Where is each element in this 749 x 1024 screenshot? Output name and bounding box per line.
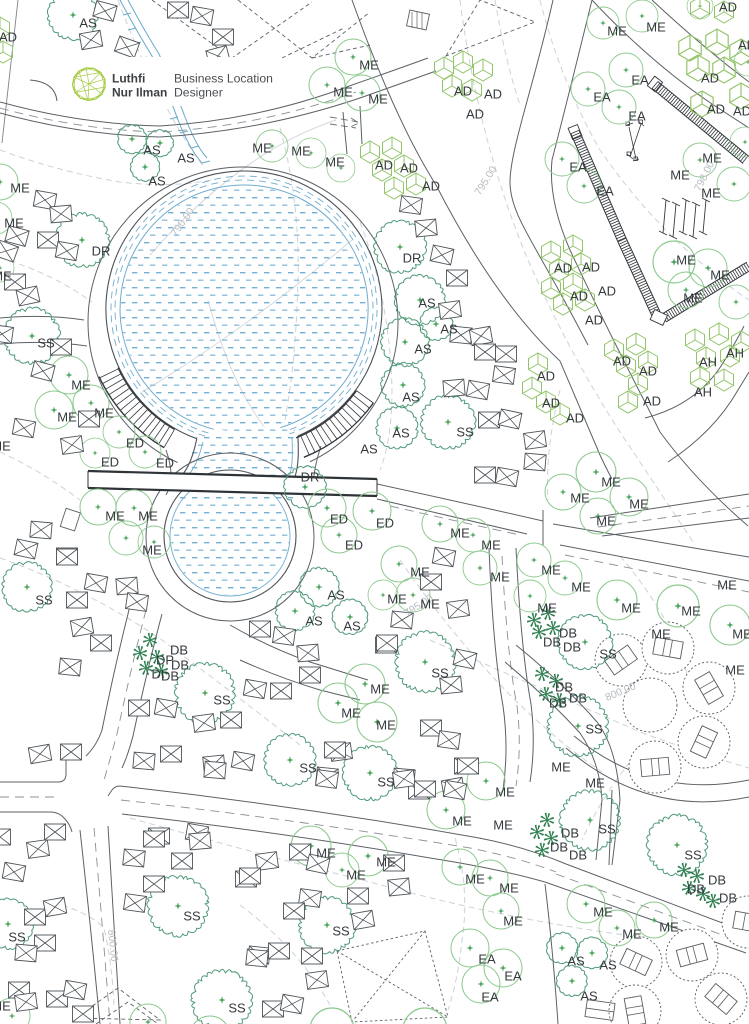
- svg-text:SS: SS: [585, 722, 603, 737]
- svg-text:AS: AS: [305, 614, 323, 629]
- svg-text:AS: AS: [567, 954, 585, 969]
- svg-text:DB: DB: [549, 696, 567, 711]
- svg-text:ME: ME: [333, 85, 353, 100]
- svg-text:DB: DB: [550, 840, 568, 855]
- svg-text:AS: AS: [148, 174, 166, 189]
- svg-text:SS: SS: [332, 924, 350, 939]
- svg-text:ME: ME: [701, 186, 721, 201]
- svg-text:ME: ME: [570, 491, 590, 506]
- svg-text:ME: ME: [659, 920, 679, 935]
- svg-text:AH: AH: [726, 346, 744, 361]
- svg-text:DB: DB: [719, 891, 737, 906]
- svg-text:SS: SS: [228, 1001, 246, 1016]
- svg-text:AS: AS: [580, 989, 598, 1004]
- svg-text:ME: ME: [495, 785, 515, 800]
- svg-text:SS: SS: [183, 909, 201, 924]
- svg-text:ME: ME: [651, 627, 671, 642]
- svg-text:DB: DB: [569, 691, 587, 706]
- svg-text:EA: EA: [569, 160, 587, 175]
- svg-text:ME: ME: [670, 168, 690, 183]
- svg-text:DB: DB: [569, 848, 587, 863]
- svg-text:ME: ME: [71, 378, 91, 393]
- svg-text:AD: AD: [484, 87, 502, 102]
- svg-text:Business Location: Business Location: [174, 72, 273, 86]
- svg-text:ME: ME: [420, 597, 440, 612]
- svg-text:ED: ED: [126, 436, 144, 451]
- svg-text:DB: DB: [543, 635, 561, 650]
- svg-text:AD: AD: [0, 30, 17, 45]
- svg-text:ME: ME: [359, 58, 379, 73]
- svg-text:ME: ME: [481, 538, 501, 553]
- svg-text:ME: ME: [57, 410, 77, 425]
- svg-text:EA: EA: [478, 952, 496, 967]
- svg-text:SS: SS: [213, 693, 231, 708]
- svg-text:SS: SS: [377, 775, 395, 790]
- svg-text:ME: ME: [585, 776, 605, 791]
- svg-text:ME: ME: [291, 144, 311, 159]
- svg-text:ME: ME: [370, 682, 390, 697]
- svg-text:ME: ME: [142, 543, 162, 558]
- svg-text:AD: AD: [554, 261, 572, 276]
- svg-text:AD: AD: [466, 107, 484, 122]
- svg-text:ME: ME: [593, 905, 613, 920]
- svg-text:Luthfi: Luthfi: [112, 72, 145, 86]
- svg-text:ME: ME: [571, 580, 591, 595]
- svg-text:AH: AH: [694, 385, 712, 400]
- svg-text:AD: AD: [542, 396, 560, 411]
- svg-text:ME: ME: [537, 601, 557, 616]
- svg-text:AD: AD: [566, 411, 584, 426]
- svg-text:AD: AD: [585, 313, 603, 328]
- svg-text:DB: DB: [687, 882, 705, 897]
- svg-text:ME: ME: [499, 881, 519, 896]
- svg-text:SS: SS: [598, 822, 616, 837]
- svg-text:EA: EA: [481, 990, 499, 1005]
- svg-text:AD: AD: [537, 369, 555, 384]
- svg-text:ME: ME: [0, 439, 11, 454]
- svg-text:AS: AS: [79, 16, 97, 31]
- svg-text:ME: ME: [387, 592, 407, 607]
- svg-text:ME: ME: [503, 914, 523, 929]
- svg-text:EA: EA: [631, 73, 649, 88]
- svg-text:ME: ME: [325, 155, 345, 170]
- svg-text:ME: ME: [490, 570, 510, 585]
- svg-text:DB: DB: [559, 626, 577, 641]
- svg-text:DR: DR: [403, 251, 422, 266]
- svg-text:ME: ME: [450, 526, 470, 541]
- svg-text:AS: AS: [360, 442, 378, 457]
- svg-text:AD: AD: [738, 38, 749, 53]
- svg-text:AD: AD: [719, 0, 737, 15]
- svg-text:SS: SS: [37, 336, 55, 351]
- svg-text:ME: ME: [0, 999, 11, 1014]
- svg-text:ME: ME: [732, 627, 749, 642]
- svg-text:DB: DB: [563, 640, 581, 655]
- svg-text:ME: ME: [94, 406, 114, 421]
- svg-text:EA: EA: [593, 90, 611, 105]
- svg-text:AS: AS: [418, 296, 436, 311]
- svg-text:AD: AD: [707, 102, 725, 117]
- svg-text:AD: AD: [733, 104, 749, 119]
- svg-text:AS: AS: [414, 342, 432, 357]
- svg-text:ME: ME: [346, 868, 366, 883]
- svg-text:SS: SS: [599, 647, 617, 662]
- svg-text:AD: AD: [375, 158, 393, 173]
- svg-text:ED: ED: [345, 538, 363, 553]
- svg-text:DR: DR: [92, 244, 111, 259]
- svg-text:EA: EA: [628, 109, 646, 124]
- svg-text:ME: ME: [493, 818, 513, 833]
- svg-text:ME: ME: [681, 604, 701, 619]
- svg-text:AD: AD: [582, 260, 600, 275]
- svg-text:SS: SS: [456, 425, 474, 440]
- svg-text:ME: ME: [452, 814, 472, 829]
- svg-text:AD: AD: [570, 289, 588, 304]
- svg-text:SS: SS: [35, 593, 53, 608]
- svg-text:AD: AD: [639, 364, 657, 379]
- svg-text:ME: ME: [316, 846, 336, 861]
- svg-text:AD: AD: [454, 84, 472, 99]
- svg-text:ME: ME: [621, 601, 641, 616]
- svg-text:AS: AS: [143, 143, 161, 158]
- svg-text:AD: AD: [701, 71, 719, 86]
- svg-text:AD: AD: [613, 354, 631, 369]
- svg-text:ME: ME: [622, 927, 642, 942]
- svg-text:DR: DR: [301, 470, 320, 485]
- svg-text:AD: AD: [422, 179, 440, 194]
- svg-text:ED: ED: [376, 516, 394, 531]
- svg-text:AS: AS: [343, 619, 361, 634]
- svg-text:ME: ME: [717, 578, 737, 593]
- svg-text:ME: ME: [105, 509, 125, 524]
- svg-text:ME: ME: [368, 92, 388, 107]
- svg-text:DB: DB: [161, 669, 179, 684]
- svg-text:AD: AD: [400, 161, 418, 176]
- svg-text:AH: AH: [699, 355, 717, 370]
- svg-text:ME: ME: [596, 514, 616, 529]
- svg-text:ME: ME: [376, 855, 396, 870]
- svg-text:ME: ME: [629, 497, 649, 512]
- svg-text:ME: ME: [646, 20, 666, 35]
- svg-text:ME: ME: [601, 475, 621, 490]
- svg-text:SS: SS: [8, 930, 26, 945]
- svg-text:DB: DB: [708, 873, 726, 888]
- svg-text:EA: EA: [596, 184, 614, 199]
- svg-text:ME: ME: [465, 872, 485, 887]
- svg-text:AD: AD: [643, 394, 661, 409]
- svg-text:ME: ME: [551, 760, 571, 775]
- svg-text:ED: ED: [101, 455, 119, 470]
- svg-text:ME: ME: [0, 269, 12, 284]
- svg-text:AS: AS: [327, 588, 345, 603]
- svg-text:ED: ED: [330, 512, 348, 527]
- svg-text:ME: ME: [410, 565, 430, 580]
- svg-text:ME: ME: [4, 216, 24, 231]
- svg-text:ME: ME: [376, 718, 396, 733]
- svg-text:ME: ME: [10, 181, 30, 196]
- svg-text:SS: SS: [431, 666, 449, 681]
- svg-text:ED: ED: [156, 456, 174, 471]
- svg-text:Nur Ilman: Nur Ilman: [112, 86, 167, 100]
- svg-text:ME: ME: [341, 706, 361, 721]
- svg-text:ME: ME: [710, 268, 730, 283]
- svg-text:AS: AS: [402, 390, 420, 405]
- svg-text:AS: AS: [392, 426, 410, 441]
- svg-text:SS: SS: [299, 761, 317, 776]
- svg-text:ME: ME: [702, 151, 722, 166]
- svg-text:ME: ME: [252, 141, 272, 156]
- svg-text:DB: DB: [561, 826, 579, 841]
- svg-text:Designer: Designer: [174, 86, 223, 100]
- svg-text:ME: ME: [725, 663, 745, 678]
- svg-text:AS: AS: [599, 958, 617, 973]
- svg-text:SS: SS: [684, 848, 702, 863]
- svg-text:AS: AS: [440, 322, 458, 337]
- svg-text:ME: ME: [541, 563, 561, 578]
- svg-text:ME: ME: [138, 509, 158, 524]
- svg-text:ME: ME: [607, 24, 627, 39]
- svg-text:ME: ME: [676, 253, 696, 268]
- svg-text:AD: AD: [598, 284, 616, 299]
- svg-text:AS: AS: [177, 151, 195, 166]
- svg-text:EA: EA: [504, 969, 522, 984]
- svg-text:ME: ME: [683, 291, 703, 306]
